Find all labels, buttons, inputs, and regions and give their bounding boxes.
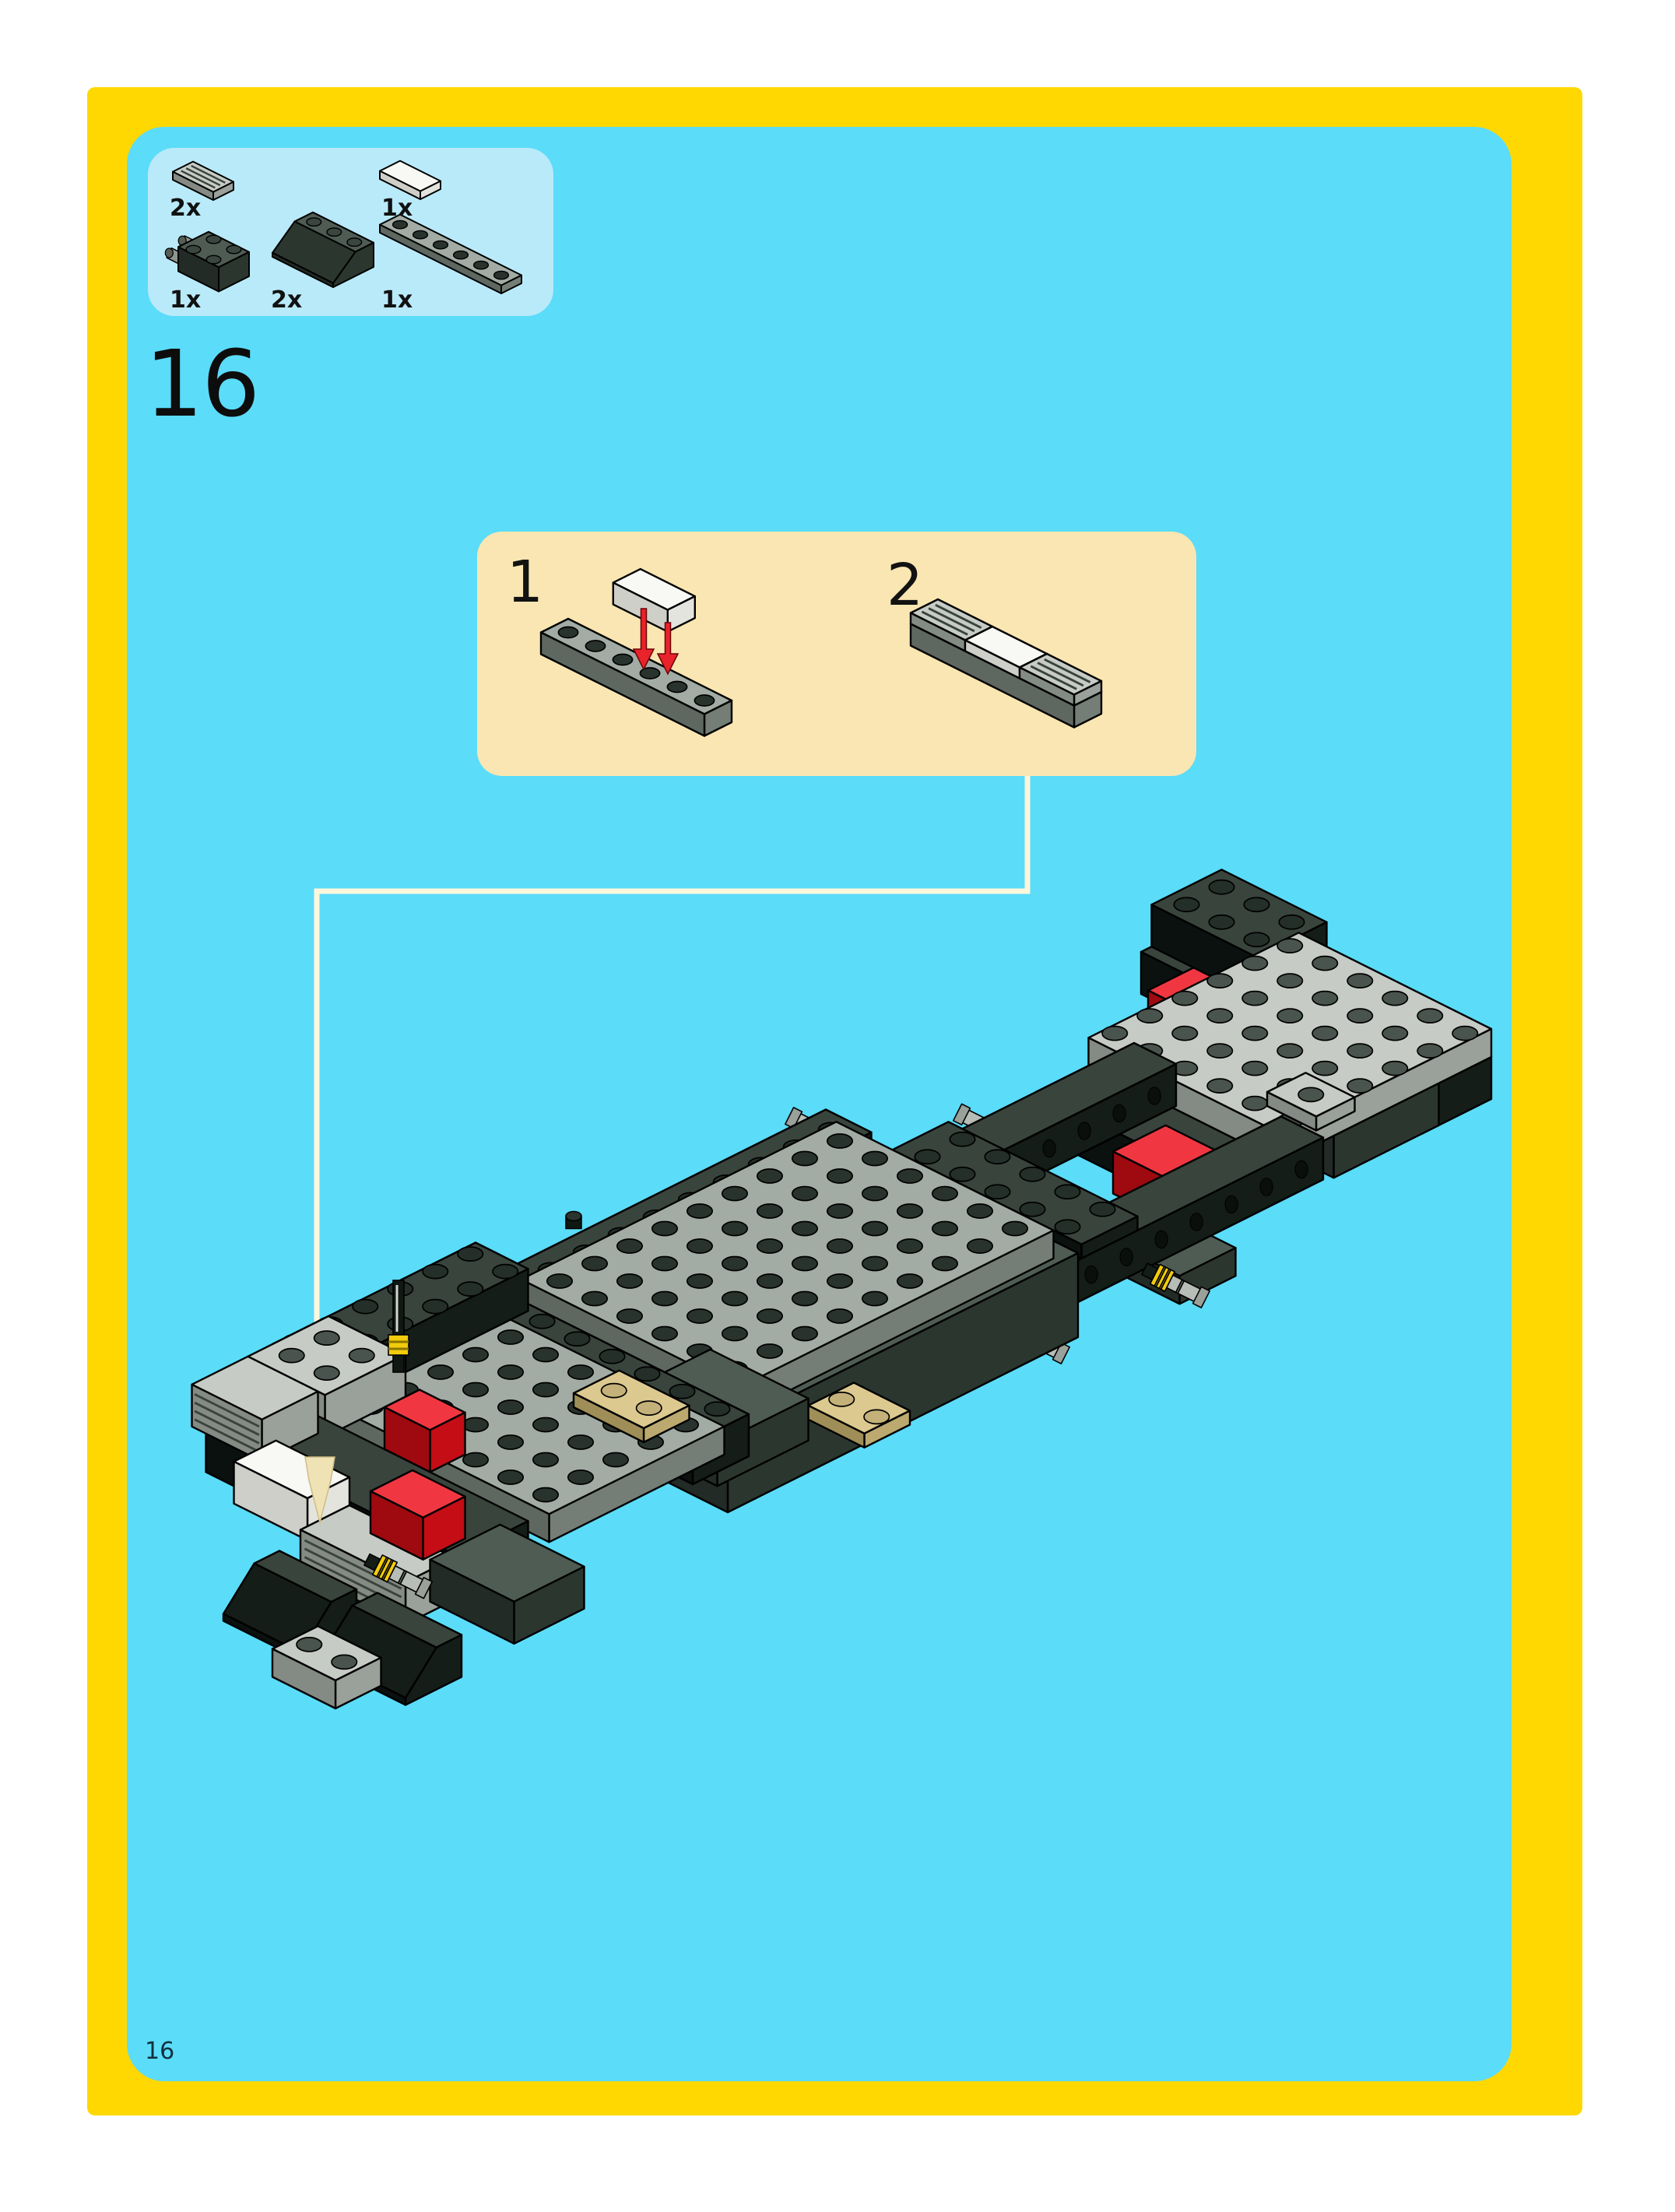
- part-qty-white-tile: 1x: [381, 195, 413, 222]
- part-qty-grille-tile: 2x: [170, 195, 201, 222]
- part-qty-brick-with-pins: 1x: [170, 286, 201, 314]
- parts-callout-box: 2x 1x 1x 2x 1x: [148, 148, 553, 316]
- part-qty-slope-brick: 2x: [271, 286, 302, 314]
- substep-2-label: 2: [887, 552, 923, 619]
- part-qty-plate-1x6: 1x: [381, 286, 413, 314]
- instruction-page: 2x 1x 1x 2x 1x 16 1 2 16: [0, 0, 1675, 2212]
- page-number: 16: [145, 2038, 174, 2065]
- substep-1-label: 1: [507, 549, 543, 616]
- substep-callout-box: 1 2: [477, 532, 1196, 776]
- step-number: 16: [145, 330, 258, 437]
- page-background: [127, 127, 1512, 2081]
